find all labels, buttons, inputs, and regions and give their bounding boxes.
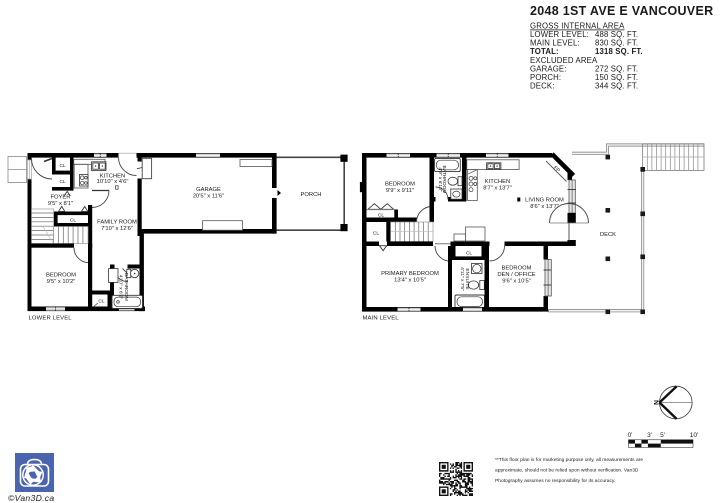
svg-text:4'9" x 6'10": 4'9" x 6'10" bbox=[437, 167, 443, 191]
svg-text:DEN / OFFICE: DEN / OFFICE bbox=[497, 272, 535, 278]
svg-text:©Van3D.ca: ©Van3D.ca bbox=[8, 493, 54, 503]
svg-text:0': 0' bbox=[628, 432, 633, 439]
svg-text:CL: CL bbox=[98, 299, 105, 305]
svg-text:2048 1ST AVE E VANCOUVER: 2048 1ST AVE E VANCOUVER bbox=[530, 4, 713, 18]
svg-text:N: N bbox=[653, 400, 660, 405]
svg-text:BATHROOM: BATHROOM bbox=[123, 273, 129, 301]
svg-text:CL: CL bbox=[378, 212, 385, 218]
svg-text:GARAGE: GARAGE bbox=[196, 187, 221, 193]
svg-text:BEDROOM: BEDROOM bbox=[46, 273, 76, 279]
svg-text:CL: CL bbox=[373, 231, 380, 237]
svg-text:8'6" x 13'7": 8'6" x 13'7" bbox=[530, 204, 559, 210]
svg-text:9'9" x 9'11": 9'9" x 9'11" bbox=[386, 188, 414, 194]
svg-text:KITCHEN: KITCHEN bbox=[485, 179, 510, 185]
svg-text:DECK: DECK bbox=[600, 232, 616, 238]
svg-text:CL: CL bbox=[466, 251, 473, 257]
svg-text:LOWER LEVEL: LOWER LEVEL bbox=[29, 316, 73, 322]
svg-text:CL: CL bbox=[59, 179, 66, 185]
svg-text:3': 3' bbox=[647, 432, 652, 439]
svg-text:BEDROOM: BEDROOM bbox=[385, 182, 415, 188]
svg-text:PORCH: PORCH bbox=[301, 192, 322, 198]
svg-text:7'10" x 12'6": 7'10" x 12'6" bbox=[101, 226, 133, 232]
svg-text:13'4" x 10'5": 13'4" x 10'5" bbox=[394, 278, 426, 284]
svg-text:9'5" x 8'1": 9'5" x 8'1" bbox=[48, 201, 73, 207]
svg-text:**This floor plan is for marke: **This floor plan is for marketing purpo… bbox=[495, 457, 643, 463]
svg-text:CL: CL bbox=[59, 163, 66, 169]
svg-text:MAIN LEVEL: MAIN LEVEL bbox=[363, 316, 400, 322]
svg-text:BEDROOM: BEDROOM bbox=[502, 266, 532, 272]
svg-text:approximate, should not be rel: approximate, should not be relied upon w… bbox=[495, 468, 639, 474]
svg-text:PRIMARY BEDROOM: PRIMARY BEDROOM bbox=[381, 271, 439, 277]
svg-text:LIVING ROOM: LIVING ROOM bbox=[525, 198, 564, 204]
svg-text:9'6" x 10'5": 9'6" x 10'5" bbox=[502, 279, 531, 285]
svg-text:10': 10' bbox=[690, 432, 698, 439]
svg-text:DECK:: DECK: bbox=[530, 82, 555, 91]
svg-text:TOTAL:: TOTAL: bbox=[530, 47, 559, 56]
svg-text:5': 5' bbox=[660, 432, 665, 439]
svg-text:CL: CL bbox=[70, 218, 77, 224]
svg-text:9'5" x 10'2": 9'5" x 10'2" bbox=[47, 279, 76, 285]
svg-text:8'7" x 13'7": 8'7" x 13'7" bbox=[483, 186, 512, 192]
svg-text:4'11" x 7'5": 4'11" x 7'5" bbox=[459, 267, 465, 291]
svg-text:20'5" x 11'6": 20'5" x 11'6" bbox=[193, 194, 224, 200]
svg-text:344 SQ. FT.: 344 SQ. FT. bbox=[595, 82, 638, 91]
svg-text:4'10" x 6'2": 4'10" x 6'2" bbox=[118, 275, 124, 299]
svg-text:Photography assumes no respons: Photography assumes no responsibility fo… bbox=[495, 478, 615, 484]
svg-text:FOYER: FOYER bbox=[51, 195, 71, 201]
svg-text:FAMILY ROOM: FAMILY ROOM bbox=[97, 220, 137, 226]
svg-text:1318 SQ. FT.: 1318 SQ. FT. bbox=[595, 47, 643, 56]
svg-text:10'10" x 4'6": 10'10" x 4'6" bbox=[97, 179, 129, 185]
